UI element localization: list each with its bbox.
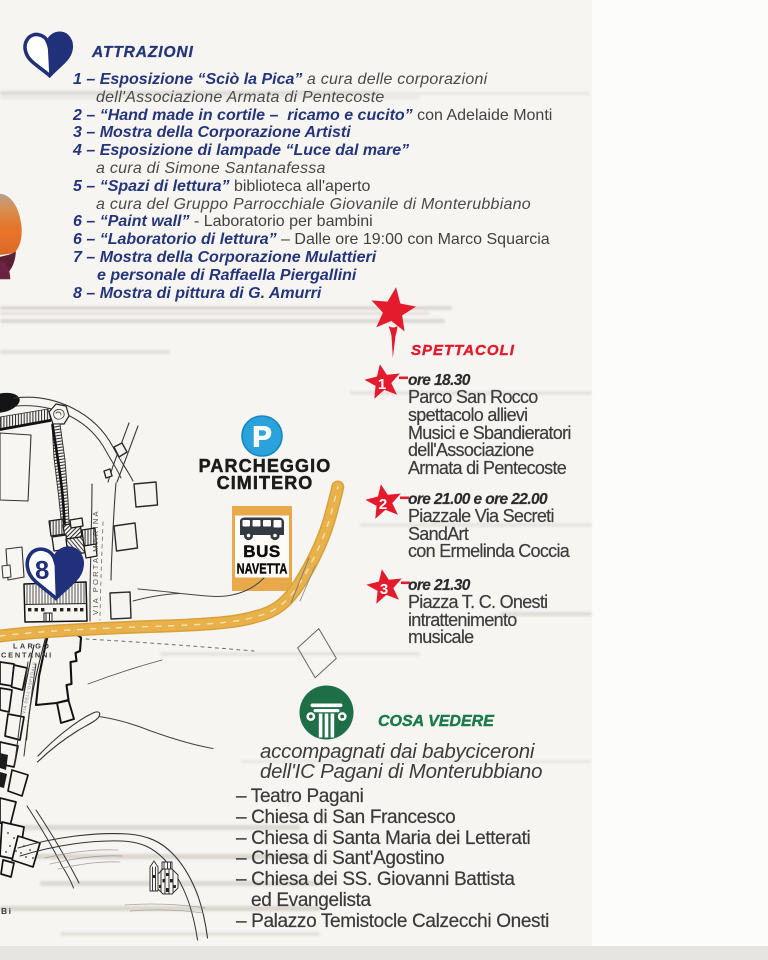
svg-text:LARGO: LARGO — [13, 642, 51, 651]
svg-text:8: 8 — [34, 556, 49, 584]
svg-text:Bi: Bi — [1, 906, 13, 916]
svg-text:CENTANNI: CENTANNI — [1, 651, 53, 660]
svg-text:VIA PORTA MARINA: VIA PORTA MARINA — [91, 509, 100, 615]
